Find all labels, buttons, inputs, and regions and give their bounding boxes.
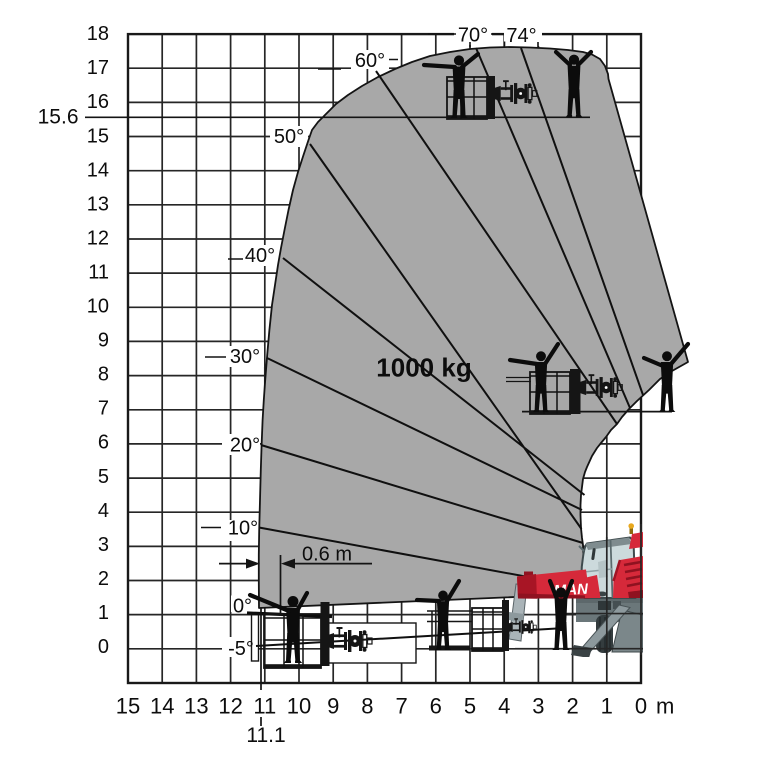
svg-text:0.6 m: 0.6 m: [302, 544, 352, 566]
svg-text:5: 5: [464, 694, 476, 719]
svg-text:17: 17: [87, 57, 109, 79]
svg-text:7: 7: [395, 694, 407, 719]
svg-text:11: 11: [88, 261, 109, 283]
svg-text:4: 4: [98, 500, 109, 522]
svg-text:10: 10: [87, 296, 109, 318]
svg-text:7: 7: [98, 398, 109, 420]
svg-text:10: 10: [287, 694, 311, 719]
svg-text:14: 14: [87, 159, 109, 181]
svg-text:6: 6: [430, 694, 442, 719]
svg-text:11.1: 11.1: [246, 724, 285, 747]
svg-text:6: 6: [98, 432, 109, 454]
svg-text:30°: 30°: [230, 346, 260, 368]
svg-text:9: 9: [327, 694, 339, 719]
svg-text:18: 18: [87, 23, 109, 45]
svg-text:13: 13: [184, 694, 208, 719]
svg-text:1: 1: [98, 602, 109, 624]
svg-text:4: 4: [498, 694, 510, 719]
svg-text:12: 12: [87, 227, 109, 249]
svg-text:8: 8: [98, 364, 109, 386]
svg-text:0: 0: [635, 694, 647, 719]
svg-text:60°: 60°: [355, 50, 385, 72]
svg-text:16: 16: [87, 91, 109, 113]
svg-text:5: 5: [98, 466, 109, 488]
svg-text:15: 15: [116, 694, 140, 719]
svg-text:8: 8: [361, 694, 373, 719]
svg-text:10°: 10°: [228, 518, 258, 540]
svg-text:74°: 74°: [506, 25, 536, 47]
svg-text:2: 2: [566, 694, 578, 719]
svg-text:1: 1: [601, 694, 613, 719]
svg-text:1000 kg: 1000 kg: [376, 353, 471, 383]
svg-text:13: 13: [87, 193, 109, 215]
svg-text:14: 14: [150, 694, 174, 719]
svg-text:0°: 0°: [233, 596, 252, 618]
svg-text:3: 3: [532, 694, 544, 719]
svg-text:12: 12: [218, 694, 242, 719]
svg-text:0: 0: [98, 636, 109, 658]
svg-text:50°: 50°: [274, 126, 304, 148]
svg-text:2: 2: [98, 568, 109, 590]
svg-text:3: 3: [98, 534, 109, 556]
svg-text:m: m: [656, 694, 674, 719]
svg-text:20°: 20°: [230, 435, 260, 457]
svg-text:70°: 70°: [458, 25, 488, 47]
svg-text:11: 11: [253, 694, 276, 719]
svg-text:40°: 40°: [245, 245, 275, 267]
svg-text:15: 15: [87, 125, 109, 147]
svg-text:15.6: 15.6: [38, 106, 79, 129]
svg-text:-5°: -5°: [228, 638, 254, 660]
svg-text:9: 9: [98, 330, 109, 352]
